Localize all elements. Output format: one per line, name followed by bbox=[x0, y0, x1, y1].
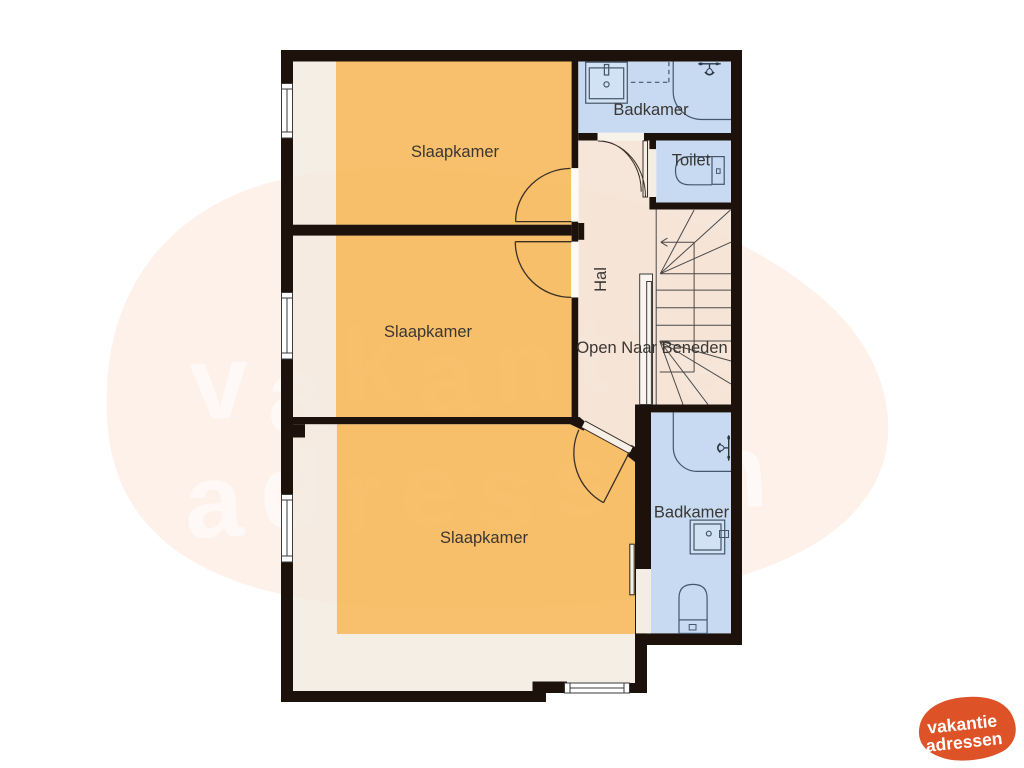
svg-text:Slaapkamer: Slaapkamer bbox=[440, 529, 529, 547]
svg-text:Hal: Hal bbox=[592, 267, 610, 292]
svg-text:Slaapkamer: Slaapkamer bbox=[384, 323, 473, 341]
svg-text:Slaapkamer: Slaapkamer bbox=[411, 143, 500, 161]
svg-text:Badkamer: Badkamer bbox=[654, 504, 730, 522]
svg-text:Open Naar Beneden: Open Naar Beneden bbox=[576, 339, 727, 357]
svg-text:Toilet: Toilet bbox=[672, 152, 711, 170]
svg-text:Badkamer: Badkamer bbox=[613, 101, 689, 119]
